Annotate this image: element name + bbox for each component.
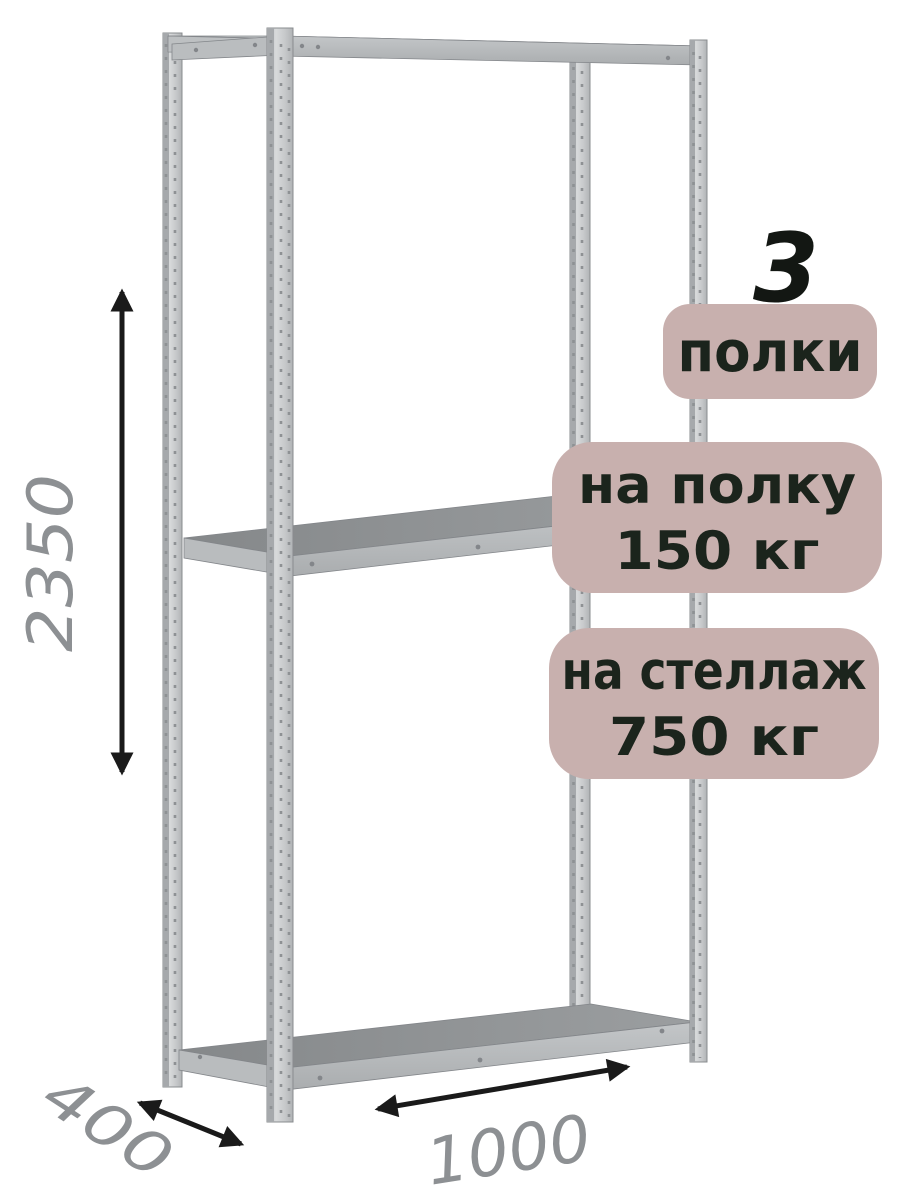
rack-post-front-left	[267, 28, 293, 1122]
product-image: 2350 400 1000 3 полки на полку 150 кг на…	[0, 0, 900, 1200]
height-dimension-label: 2350	[14, 474, 87, 652]
width-dimension-label: 1000	[421, 1102, 596, 1200]
rack-load-badge-line1: на стеллаж	[562, 641, 867, 702]
shelf-top	[168, 36, 700, 65]
depth-dimension: 400	[31, 1060, 241, 1193]
shelf-count-badge-label: полки	[678, 320, 863, 385]
shelf-load-badge-line2: 150 кг	[615, 521, 820, 582]
shelf-count-badge: полки	[663, 304, 877, 399]
rack-post-rear-left	[163, 33, 182, 1087]
rack-load-badge-line2: 750 кг	[609, 707, 819, 768]
shelf-load-badge-line1: на полку	[578, 455, 856, 516]
depth-dimension-label: 400	[31, 1060, 185, 1193]
shelf-load-badge: на полку 150 кг	[552, 442, 882, 593]
width-dimension: 1000	[378, 1067, 627, 1200]
shelf-bottom	[179, 1004, 697, 1090]
rack-load-badge: на стеллаж 750 кг	[549, 628, 879, 779]
height-dimension: 2350	[14, 292, 122, 772]
